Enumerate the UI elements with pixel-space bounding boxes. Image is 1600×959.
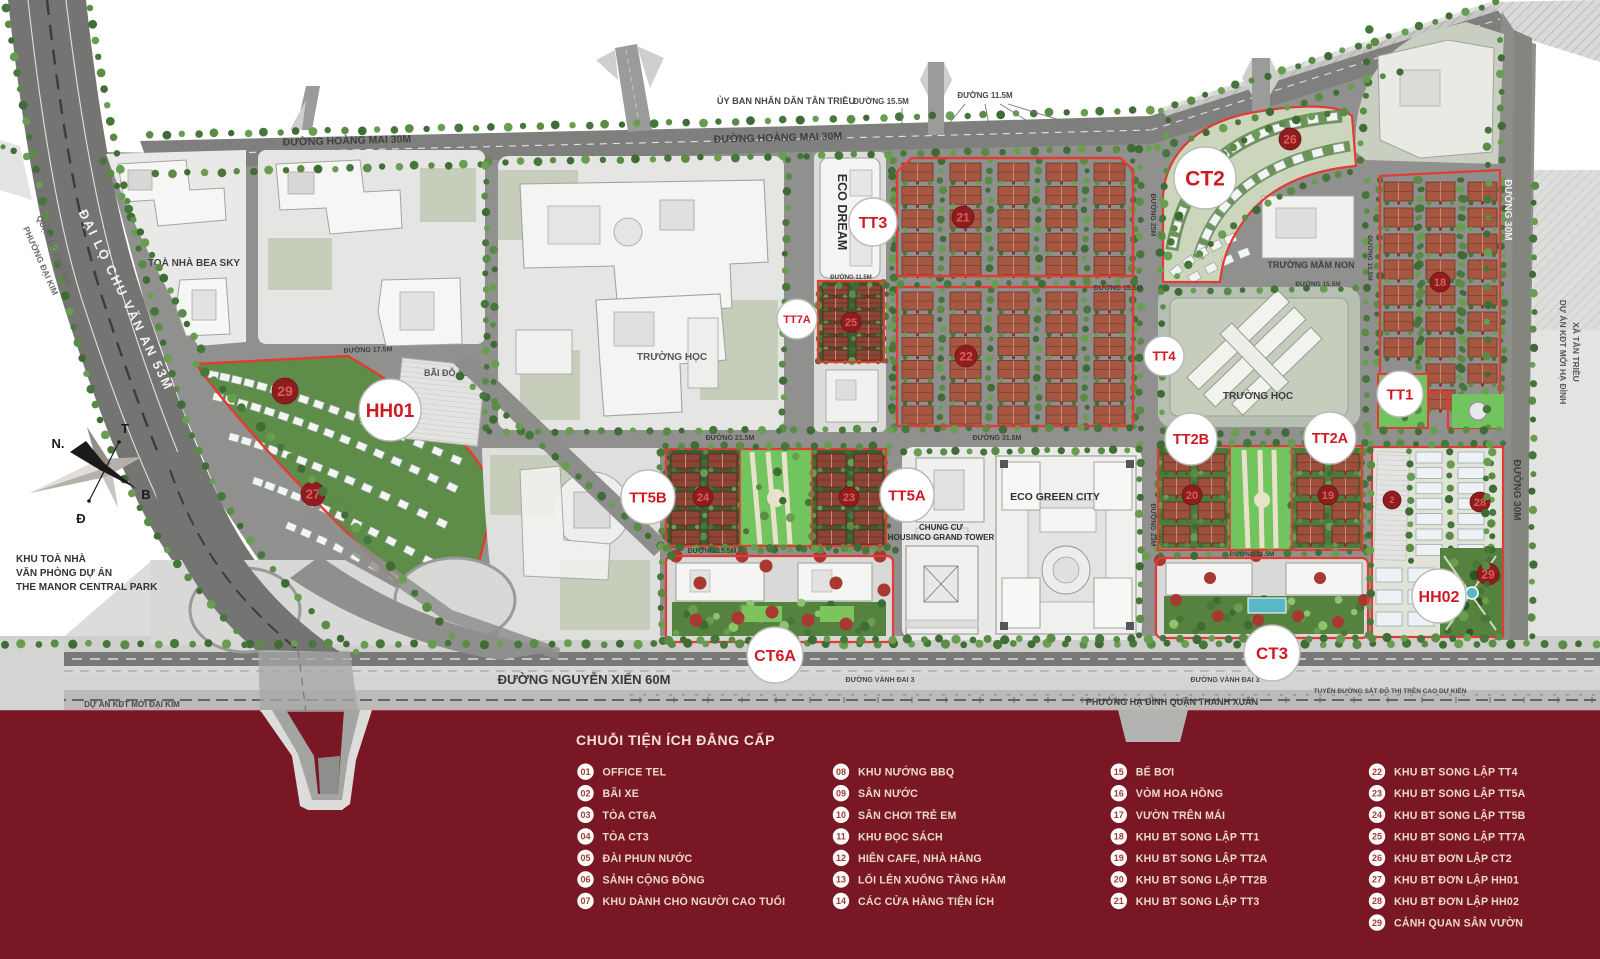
svg-text:ĐƯỜNG 15.5M: ĐƯỜNG 15.5M bbox=[688, 546, 737, 555]
svg-text:TT5B: TT5B bbox=[629, 489, 667, 506]
svg-text:04: 04 bbox=[580, 832, 590, 842]
svg-text:DỰ ÁN KĐT MỚI ĐẠI KIM: DỰ ÁN KĐT MỚI ĐẠI KIM bbox=[84, 700, 180, 709]
svg-text:HH02: HH02 bbox=[1419, 589, 1460, 606]
svg-text:SẢNH CỘNG ĐỒNG: SẢNH CỘNG ĐỒNG bbox=[603, 874, 705, 887]
svg-text:CHUNG CƯ: CHUNG CƯ bbox=[919, 523, 963, 532]
svg-text:KHU ĐỌC SÁCH: KHU ĐỌC SÁCH bbox=[858, 830, 943, 843]
svg-text:11: 11 bbox=[836, 832, 846, 842]
svg-text:THE MANOR CENTRAL PARK: THE MANOR CENTRAL PARK bbox=[16, 582, 158, 593]
svg-text:17: 17 bbox=[1114, 810, 1124, 820]
svg-text:TT3: TT3 bbox=[859, 215, 888, 232]
svg-text:09: 09 bbox=[836, 789, 846, 799]
svg-text:ỦY BAN NHÂN DÂN TÂN TRIỀU: ỦY BAN NHÂN DÂN TÂN TRIỀU bbox=[717, 95, 856, 106]
svg-text:19: 19 bbox=[1322, 490, 1334, 502]
svg-text:28: 28 bbox=[1372, 896, 1382, 906]
svg-text:KHU BT SONG LẬP TT2A: KHU BT SONG LẬP TT2A bbox=[1136, 852, 1268, 865]
svg-text:KHU BT SONG LẬP TT2B: KHU BT SONG LẬP TT2B bbox=[1136, 874, 1268, 887]
svg-text:PHƯỜNG HẠ ĐÌNH QUẬN THANH XUÂN: PHƯỜNG HẠ ĐÌNH QUẬN THANH XUÂN bbox=[1086, 696, 1258, 707]
svg-text:26: 26 bbox=[1283, 132, 1297, 146]
svg-text:Đ: Đ bbox=[76, 511, 85, 526]
svg-text:ĐƯỜNG 21.5M: ĐƯỜNG 21.5M bbox=[706, 433, 755, 442]
svg-text:24: 24 bbox=[697, 492, 710, 504]
svg-text:ĐƯỜNG 15.5M: ĐƯỜNG 15.5M bbox=[1094, 283, 1143, 292]
svg-text:ĐƯỜNG 31.5M: ĐƯỜNG 31.5M bbox=[973, 433, 1022, 442]
svg-text:22: 22 bbox=[1372, 767, 1382, 777]
svg-text:OFFICE TEL: OFFICE TEL bbox=[603, 767, 667, 779]
svg-text:19: 19 bbox=[1114, 853, 1124, 863]
svg-text:SÂN NƯỚC: SÂN NƯỚC bbox=[858, 787, 918, 800]
svg-text:23: 23 bbox=[843, 492, 855, 504]
svg-text:ĐƯỜNG 11.5M: ĐƯỜNG 11.5M bbox=[1230, 549, 1275, 558]
svg-text:24: 24 bbox=[1372, 810, 1382, 820]
svg-text:CÁC CỬA HÀNG TIỆN ÍCH: CÁC CỬA HÀNG TIỆN ÍCH bbox=[858, 895, 994, 908]
svg-text:05: 05 bbox=[580, 853, 590, 863]
svg-text:ECO DREAM: ECO DREAM bbox=[835, 174, 849, 250]
svg-text:B: B bbox=[141, 487, 150, 502]
svg-text:KHU TOÀ NHÀ: KHU TOÀ NHÀ bbox=[16, 552, 86, 565]
svg-text:CT2: CT2 bbox=[1185, 168, 1225, 191]
svg-text:TRƯỜNG MẦM NON: TRƯỜNG MẦM NON bbox=[1267, 259, 1354, 270]
svg-text:HOUSINCO GRAND TOWER: HOUSINCO GRAND TOWER bbox=[888, 533, 995, 542]
svg-text:KHU BT ĐƠN LẬP CT2: KHU BT ĐƠN LẬP CT2 bbox=[1394, 852, 1512, 865]
svg-text:27: 27 bbox=[1372, 875, 1382, 885]
svg-text:18: 18 bbox=[1114, 832, 1124, 842]
svg-text:BỂ BƠI: BỂ BƠI bbox=[1136, 766, 1175, 779]
svg-text:10: 10 bbox=[836, 810, 846, 820]
svg-text:KHU BT SONG LẬP TT5A: KHU BT SONG LẬP TT5A bbox=[1394, 787, 1526, 800]
svg-text:21: 21 bbox=[1114, 896, 1124, 906]
svg-text:27: 27 bbox=[306, 487, 320, 502]
svg-text:ĐƯỜNG VÀNH ĐAI 3: ĐƯỜNG VÀNH ĐAI 3 bbox=[1191, 675, 1260, 684]
svg-text:ĐƯỜNG VÀNH ĐAI 3: ĐƯỜNG VÀNH ĐAI 3 bbox=[846, 675, 915, 684]
svg-text:21: 21 bbox=[956, 210, 970, 224]
svg-text:15: 15 bbox=[1114, 767, 1124, 777]
svg-text:TT5A: TT5A bbox=[888, 487, 926, 504]
svg-text:KHU BT SONG LẬP TT5B: KHU BT SONG LẬP TT5B bbox=[1394, 809, 1526, 822]
svg-text:01: 01 bbox=[580, 767, 590, 777]
svg-text:18: 18 bbox=[1434, 277, 1446, 289]
svg-text:16: 16 bbox=[1114, 789, 1124, 799]
svg-text:TT7A: TT7A bbox=[783, 314, 811, 326]
svg-text:12: 12 bbox=[836, 853, 846, 863]
svg-text:VƯỜN TRÊN MÁI: VƯỜN TRÊN MÁI bbox=[1136, 809, 1225, 822]
svg-text:SÂN CHƠI TRẺ EM: SÂN CHƠI TRẺ EM bbox=[858, 809, 957, 822]
svg-text:TÒA CT3: TÒA CT3 bbox=[603, 830, 649, 843]
svg-text:T: T bbox=[121, 421, 129, 436]
svg-text:07: 07 bbox=[580, 896, 590, 906]
svg-text:03: 03 bbox=[580, 810, 590, 820]
svg-text:06: 06 bbox=[580, 875, 590, 885]
svg-text:ĐƯỜNG 15.5M: ĐƯỜNG 15.5M bbox=[1295, 279, 1340, 288]
svg-text:14: 14 bbox=[836, 896, 846, 906]
svg-text:KHU DÀNH CHO NGƯỜI CAO TUỔI: KHU DÀNH CHO NGƯỜI CAO TUỔI bbox=[603, 895, 786, 908]
svg-text:KHU BT SONG LẬP TT7A: KHU BT SONG LẬP TT7A bbox=[1394, 830, 1526, 843]
svg-text:TÒA CT6A: TÒA CT6A bbox=[603, 809, 657, 822]
svg-text:25: 25 bbox=[1372, 832, 1382, 842]
svg-text:29: 29 bbox=[1372, 918, 1382, 928]
svg-text:KHU BT ĐƠN LẬP HH02: KHU BT ĐƠN LẬP HH02 bbox=[1394, 895, 1519, 908]
svg-text:13: 13 bbox=[836, 875, 846, 885]
svg-text:HIÊN CAFE, NHÀ HÀNG: HIÊN CAFE, NHÀ HÀNG bbox=[858, 852, 982, 865]
svg-text:29: 29 bbox=[277, 383, 293, 399]
svg-text:KHU BT SONG LẬP TT3: KHU BT SONG LẬP TT3 bbox=[1136, 895, 1260, 908]
svg-text:ĐƯỜNG 11.5M: ĐƯỜNG 11.5M bbox=[830, 273, 871, 281]
svg-text:ĐƯỜNG 23M: ĐƯỜNG 23M bbox=[1149, 504, 1158, 547]
svg-text:2: 2 bbox=[1389, 495, 1394, 505]
svg-text:ĐÀI PHUN NƯỚC: ĐÀI PHUN NƯỚC bbox=[603, 852, 693, 865]
svg-text:TT4: TT4 bbox=[1152, 349, 1176, 364]
svg-text:ĐƯỜNG 15.5M: ĐƯỜNG 15.5M bbox=[1366, 235, 1375, 280]
svg-text:CẢNH QUAN SÂN VƯỜN: CẢNH QUAN SÂN VƯỜN bbox=[1394, 917, 1523, 930]
svg-text:25: 25 bbox=[845, 317, 857, 329]
svg-text:VĂN PHÒNG DỰ ÁN: VĂN PHÒNG DỰ ÁN bbox=[16, 566, 112, 579]
svg-text:ĐƯỜNG 11.5M: ĐƯỜNG 11.5M bbox=[957, 91, 1013, 100]
svg-text:ĐƯỜNG 30M: ĐƯỜNG 30M bbox=[1511, 459, 1524, 520]
svg-text:LỐI LÊN XUỐNG TẦNG HẦM: LỐI LÊN XUỐNG TẦNG HẦM bbox=[858, 873, 1006, 887]
svg-text:CT3: CT3 bbox=[1256, 644, 1288, 663]
svg-text:ĐƯỜNG NGUYỄN XIỂN 60M: ĐƯỜNG NGUYỄN XIỂN 60M bbox=[498, 672, 671, 687]
svg-text:KHU NƯỚNG BBQ: KHU NƯỚNG BBQ bbox=[858, 766, 954, 779]
svg-text:VÒM HOA HỒNG: VÒM HOA HỒNG bbox=[1136, 787, 1223, 800]
svg-text:KHU BT SONG LẬP TT1: KHU BT SONG LẬP TT1 bbox=[1136, 830, 1260, 843]
svg-text:BÃI XE: BÃI XE bbox=[603, 787, 640, 800]
svg-text:DỰ ÁN KĐT MỚI HẠ ĐÌNH: DỰ ÁN KĐT MỚI HẠ ĐÌNH bbox=[1558, 300, 1569, 405]
svg-text:XÃ TÂN TRIỀU: XÃ TÂN TRIỀU bbox=[1571, 322, 1582, 382]
svg-text:ECO GREEN CITY: ECO GREEN CITY bbox=[1010, 491, 1100, 503]
svg-text:ĐƯỜNG 30M: ĐƯỜNG 30M bbox=[1502, 179, 1515, 240]
svg-text:CT6A: CT6A bbox=[754, 648, 796, 665]
svg-text:20: 20 bbox=[1186, 490, 1198, 502]
svg-text:20: 20 bbox=[1114, 875, 1124, 885]
svg-text:TT2A: TT2A bbox=[1312, 431, 1349, 447]
svg-text:08: 08 bbox=[836, 767, 846, 777]
svg-text:TRƯỜNG HỌC: TRƯỜNG HỌC bbox=[1223, 389, 1293, 402]
svg-text:KHU BT ĐƠN LẬP HH01: KHU BT ĐƠN LẬP HH01 bbox=[1394, 874, 1519, 887]
svg-text:02: 02 bbox=[580, 789, 590, 799]
svg-text:TRƯỜNG HỌC: TRƯỜNG HỌC bbox=[637, 350, 707, 363]
svg-text:KHU BT SONG LẬP TT4: KHU BT SONG LẬP TT4 bbox=[1394, 766, 1518, 779]
svg-text:CHUỖI TIỆN ÍCH ĐẲNG CẤP: CHUỖI TIỆN ÍCH ĐẲNG CẤP bbox=[576, 731, 775, 748]
svg-text:HH01: HH01 bbox=[366, 401, 415, 422]
svg-text:N.: N. bbox=[52, 436, 65, 451]
svg-text:TT2B: TT2B bbox=[1173, 432, 1209, 448]
svg-text:ĐƯỜNG 15.5M: ĐƯỜNG 15.5M bbox=[853, 97, 909, 106]
svg-text:26: 26 bbox=[1372, 853, 1382, 863]
svg-text:ĐƯỜNG 25M: ĐƯỜNG 25M bbox=[1149, 194, 1158, 237]
svg-text:22: 22 bbox=[959, 349, 973, 363]
svg-text:TT1: TT1 bbox=[1387, 386, 1414, 403]
svg-text:23: 23 bbox=[1372, 789, 1382, 799]
